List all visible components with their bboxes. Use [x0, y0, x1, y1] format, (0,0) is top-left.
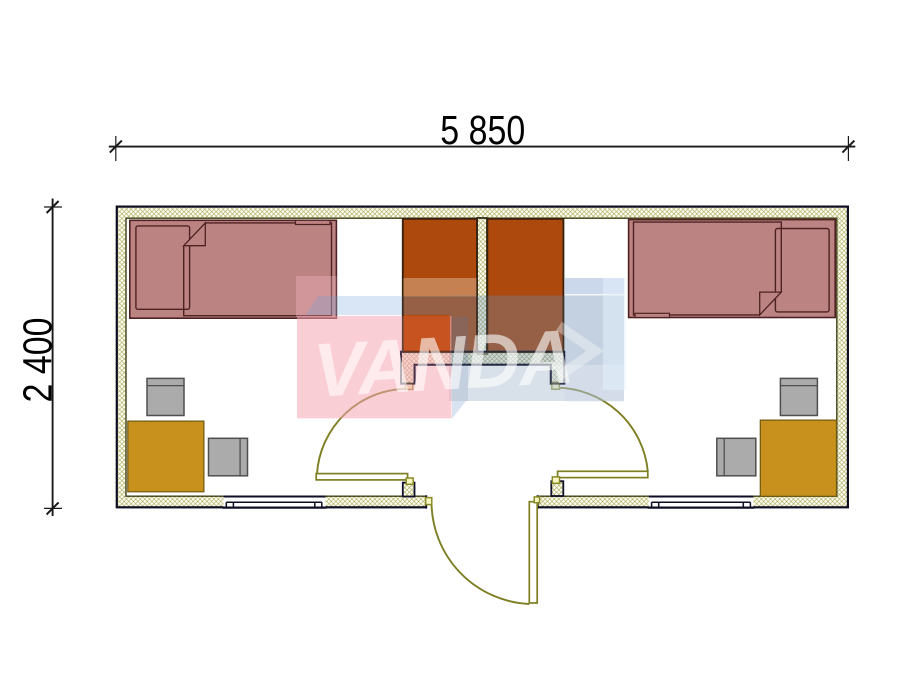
svg-text:2 400: 2 400	[14, 318, 60, 403]
svg-text:VANDA: VANDA	[311, 314, 575, 413]
svg-text:5 850: 5 850	[440, 107, 525, 153]
